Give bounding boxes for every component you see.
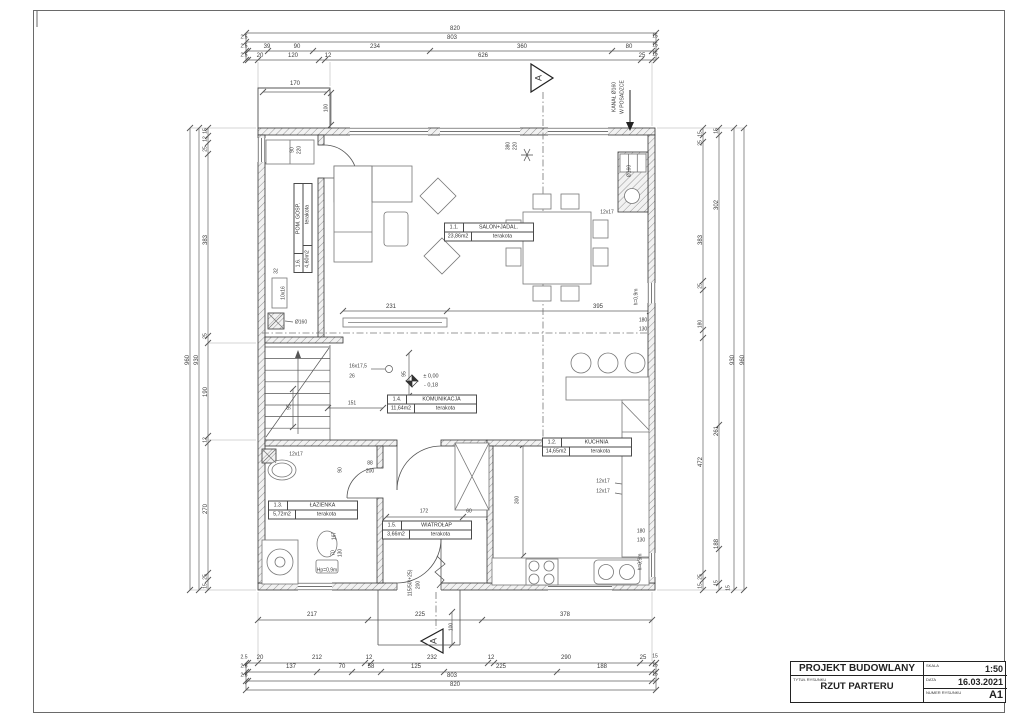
floor-plan-drawing [0,0,1024,724]
drawing-number-caption: NUMER RYSUNKU [926,690,961,695]
scale-caption: SKALA [926,663,939,668]
duct-arrow [626,90,634,131]
drawing-title-cell: TYTUŁ RYSUNKU RZUT PARTERU [791,676,924,702]
date-value: 16.03.2021 [958,677,1003,687]
title-block: PROJEKT BUDOWLANY TYTUŁ RYSUNKU RZUT PAR… [790,661,1006,703]
entry-porch [378,590,460,645]
level-marker [406,375,418,387]
stairs [265,345,393,440]
drawing-title: RZUT PARTERU [791,681,923,692]
project-title: PROJEKT BUDOWLANY [791,662,924,676]
date-caption: DATA [926,677,936,682]
windows [258,128,656,591]
drawing-title-caption: TYTUŁ RYSUNKU [793,677,826,682]
date-cell: DATA 16.03.2021 [924,676,1007,689]
drawing-number-cell: NUMER RYSUNKU A1 [924,689,1007,702]
walls [258,128,655,590]
terrace-outline [258,88,330,128]
scale-value: 1:50 [985,664,1003,674]
scale-cell: SKALA 1:50 [924,662,1007,676]
drawing-number-value: A1 [989,689,1003,701]
snowflake-symbol [521,149,533,161]
